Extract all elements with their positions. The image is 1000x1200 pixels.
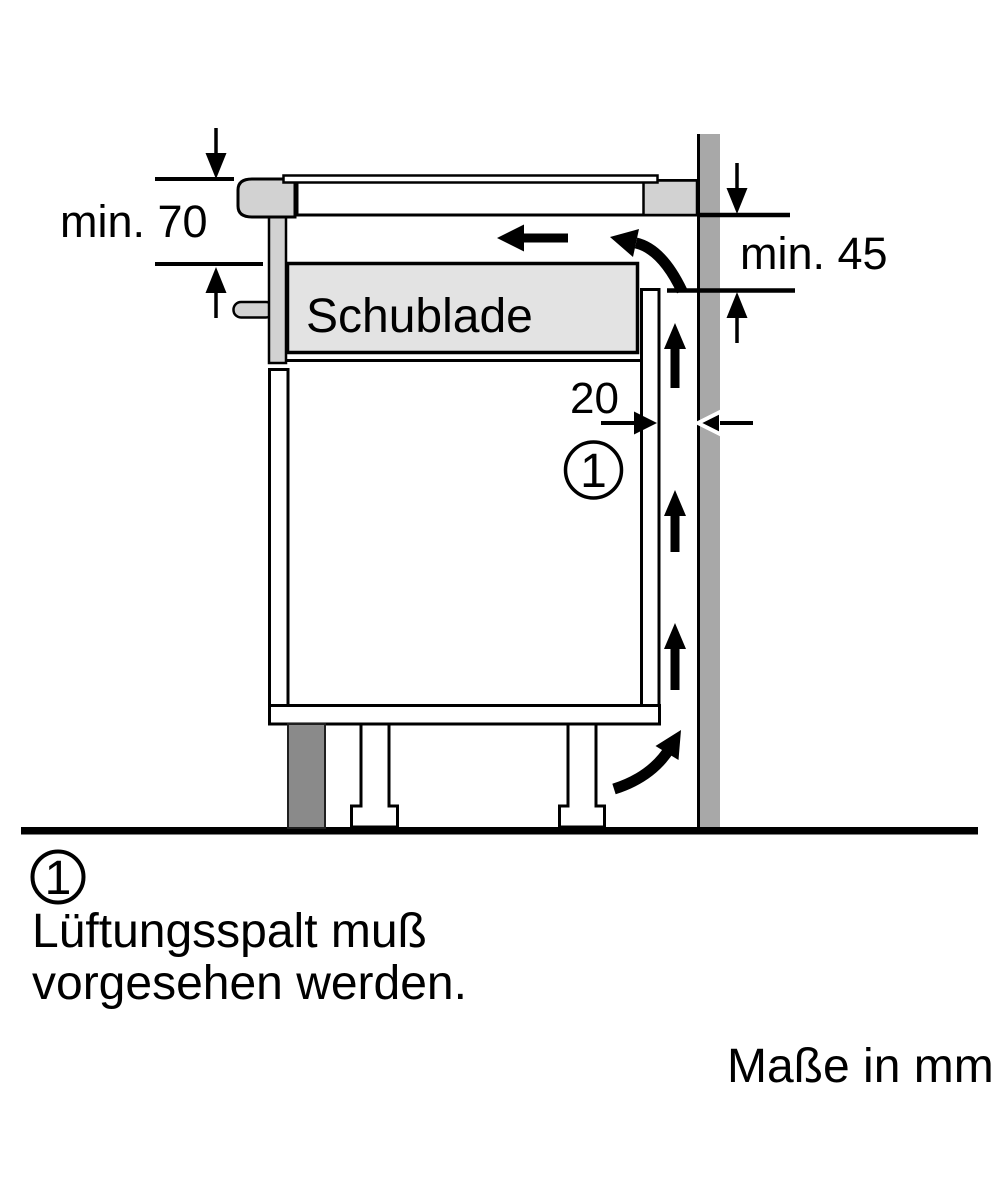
dim-label-left: min. 70 [60, 196, 208, 247]
dim-arrow-down-left [206, 128, 227, 179]
cabinet-bottom-panel [270, 706, 660, 725]
floor-line [21, 827, 978, 835]
cabinet-left-frame [270, 370, 289, 725]
legend-number: 1 [45, 852, 72, 905]
hob-fixing-pin [234, 302, 274, 318]
callout-marker: 1 [566, 442, 622, 498]
hob-front-strip [269, 216, 286, 363]
airflow-arrow-curved-top-shaft [636, 243, 682, 291]
dim-arrow-up-right [727, 292, 748, 343]
drawer-label: Schublade [306, 290, 533, 343]
dim-label-right: min. 45 [740, 228, 888, 279]
legend-marker: 1 [33, 852, 84, 906]
callout-number: 1 [580, 445, 607, 498]
airflow-arrow-curved-top-head [610, 229, 639, 257]
cabinet-leg-left [352, 724, 398, 827]
countertop-rear-block [644, 181, 698, 216]
airflow-arrow-left [497, 225, 568, 252]
plinth-panel [288, 724, 325, 828]
dim-arrow-down-right [727, 163, 748, 214]
legend-text-line2: vorgesehen werden. [32, 957, 467, 1010]
countertop [297, 181, 697, 216]
airflow-arrow-curved-bottom-shaft [614, 748, 670, 789]
dim-label-gap: 20 [570, 374, 619, 423]
airflow-arrow-up-2 [664, 490, 686, 552]
wall-bar [697, 134, 720, 828]
airflow-arrow-up-1 [664, 323, 686, 388]
dim-arrow-up-left [206, 267, 227, 318]
airflow-arrow-up-3 [664, 623, 686, 690]
units-note: Maße in mm [727, 1040, 994, 1093]
legend-text-line1: Lüftungsspalt muß [32, 905, 427, 958]
cabinet-back-panel [642, 290, 660, 706]
installation-diagram: Schublade [0, 0, 1000, 1200]
airflow-arrow-curved-bottom [614, 730, 681, 789]
hob-front-profile [238, 179, 295, 217]
installation-diagram-page: Schublade [0, 0, 1000, 1200]
dim-arrow-down-right-head [727, 188, 748, 214]
cabinet-leg-right [560, 724, 605, 827]
dim-arrow-down-left-head [206, 153, 227, 179]
dim-arrow-up-right-head [727, 292, 748, 318]
dim-arrow-up-left-head [206, 267, 227, 293]
hob-glass-sheet [284, 176, 658, 183]
